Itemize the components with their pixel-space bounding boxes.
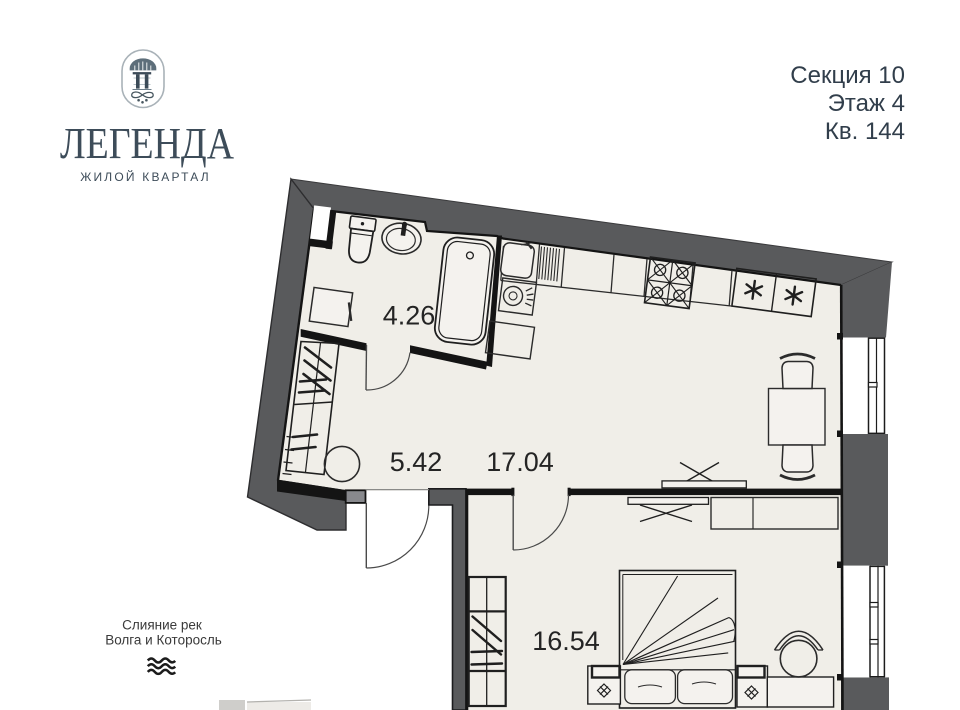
svg-text:ЛЕГЕНДА: ЛЕГЕНДА [60, 119, 234, 168]
svg-text:Слияние рек: Слияние рек [122, 618, 202, 633]
svg-text:Кв. 144: Кв. 144 [825, 118, 905, 145]
svg-text:Этаж 4: Этаж 4 [828, 90, 905, 117]
svg-text:ЖИЛОЙ КВАРТАЛ: ЖИЛОЙ КВАРТАЛ [80, 169, 211, 184]
svg-text:Секция 10: Секция 10 [790, 62, 905, 89]
svg-text:4.26: 4.26 [383, 301, 436, 331]
svg-text:Волга и Которосль: Волга и Которосль [105, 633, 222, 648]
svg-text:17.04: 17.04 [486, 447, 554, 477]
svg-text:5.42: 5.42 [390, 447, 443, 477]
svg-text:16.54: 16.54 [532, 626, 600, 656]
